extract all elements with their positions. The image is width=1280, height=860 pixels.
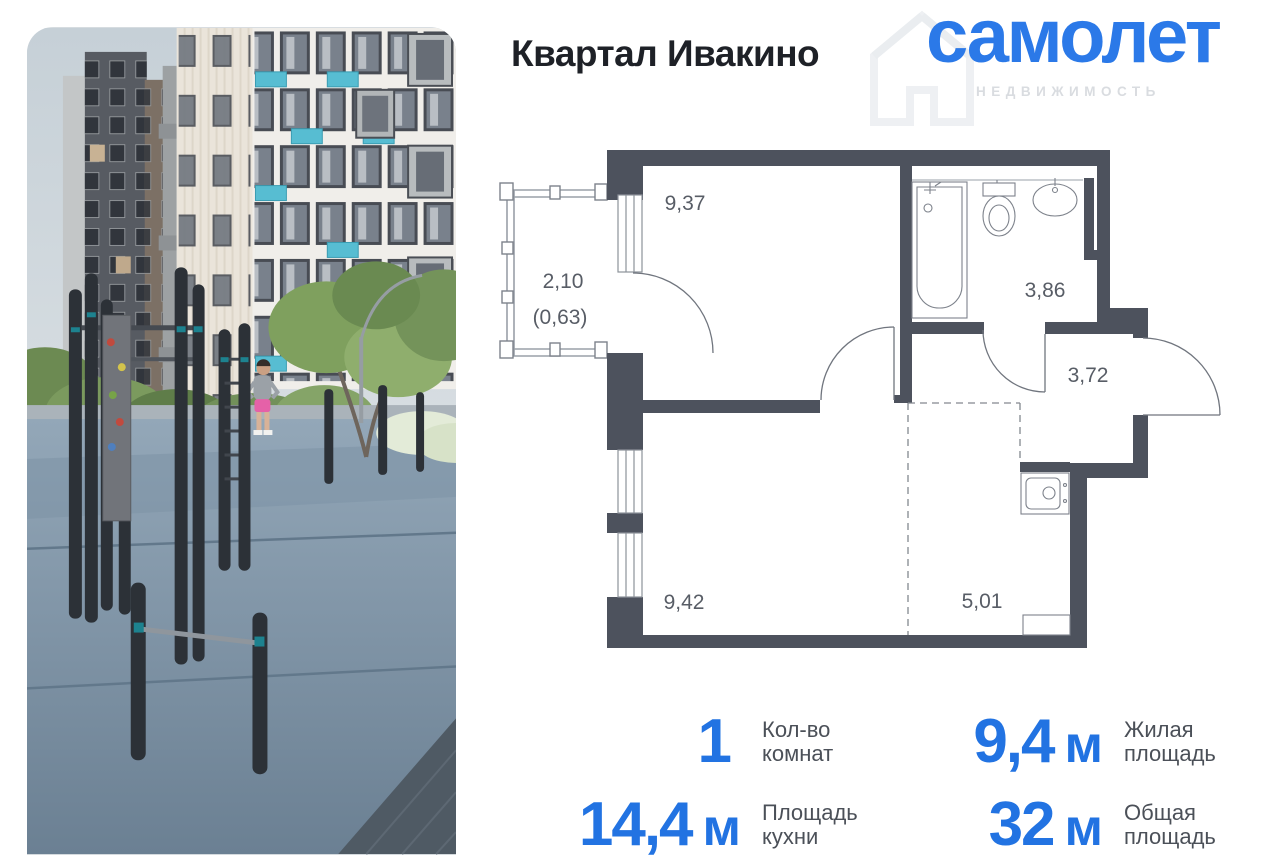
stat-kitchen-value-box: 14,4 м: [540, 793, 741, 860]
stat-rooms: 1 Кол-во комнат: [540, 710, 833, 774]
toilet-tank: [983, 183, 1015, 196]
stat-label-line1: Кол-во: [762, 718, 833, 742]
stat-total-area: 32 м Общая площадь: [860, 793, 1216, 860]
logo-subtitle: НЕДВИЖИМОСТЬ: [976, 84, 1161, 99]
project-photo-illustration: [27, 27, 456, 855]
stat-value: 14,4: [579, 793, 692, 857]
stat-unit: м: [1065, 796, 1103, 860]
stat-label-line2: кухни: [762, 825, 858, 849]
plan-label-bathroom: 3,86: [1025, 279, 1066, 302]
stat-unit: м: [703, 796, 741, 860]
stat-label: Жилая площадь: [1124, 710, 1216, 766]
brand-logo: самолет НЕДВИЖИМОСТЬ: [862, 8, 1262, 118]
stat-label: Площадь кухни: [762, 793, 858, 849]
stat-living-area: 9,4 м Жилая площадь: [860, 710, 1216, 777]
floor-plan: 9,37 2,10 (0,63) 3,86 3,72 9,42 5,01: [480, 140, 1240, 700]
walls: [607, 150, 1148, 648]
page-title: Квартал Ивакино: [511, 33, 819, 75]
stat-unit: м: [1065, 713, 1103, 777]
project-photo: [27, 27, 456, 855]
stat-value: 9,4: [973, 710, 1053, 774]
kitchen-fixtures: [1021, 473, 1070, 635]
plan-label-balcony-width: 2,10: [543, 270, 584, 293]
stat-living-value-box: 9,4 м: [860, 710, 1103, 777]
stat-label-line2: площадь: [1124, 825, 1216, 849]
stat-rooms-value-box: 1: [540, 710, 741, 774]
stat-kitchen-area: 14,4 м Площадь кухни: [540, 793, 858, 860]
stat-label-line1: Жилая: [1124, 718, 1216, 742]
sink: [1033, 184, 1077, 216]
plan-label-kitchen-niche: 5,01: [962, 590, 1003, 613]
logo-brand-text: самолет: [926, 0, 1219, 92]
listing-card: { "header": { "title": "Квартал Ивакино"…: [0, 0, 1280, 855]
plan-label-balcony-area: (0,63): [533, 306, 588, 329]
stat-label-line1: Общая: [1124, 801, 1216, 825]
stat-label-line2: комнат: [762, 742, 833, 766]
stat-label: Общая площадь: [1124, 793, 1216, 849]
stat-label: Кол-во комнат: [762, 710, 833, 766]
stat-label-line1: Площадь: [762, 801, 858, 825]
stat-total-value-box: 32 м: [860, 793, 1103, 860]
stat-label-line2: площадь: [1124, 742, 1216, 766]
plan-label-room: 9,37: [665, 192, 706, 215]
plan-label-hallway: 3,72: [1068, 364, 1109, 387]
toilet-bowl: [983, 196, 1015, 236]
plan-label-kitchen-living: 9,42: [664, 591, 705, 614]
stat-value: 32: [989, 793, 1054, 857]
vent-notch: [1023, 615, 1070, 635]
stat-value: 1: [698, 710, 730, 774]
